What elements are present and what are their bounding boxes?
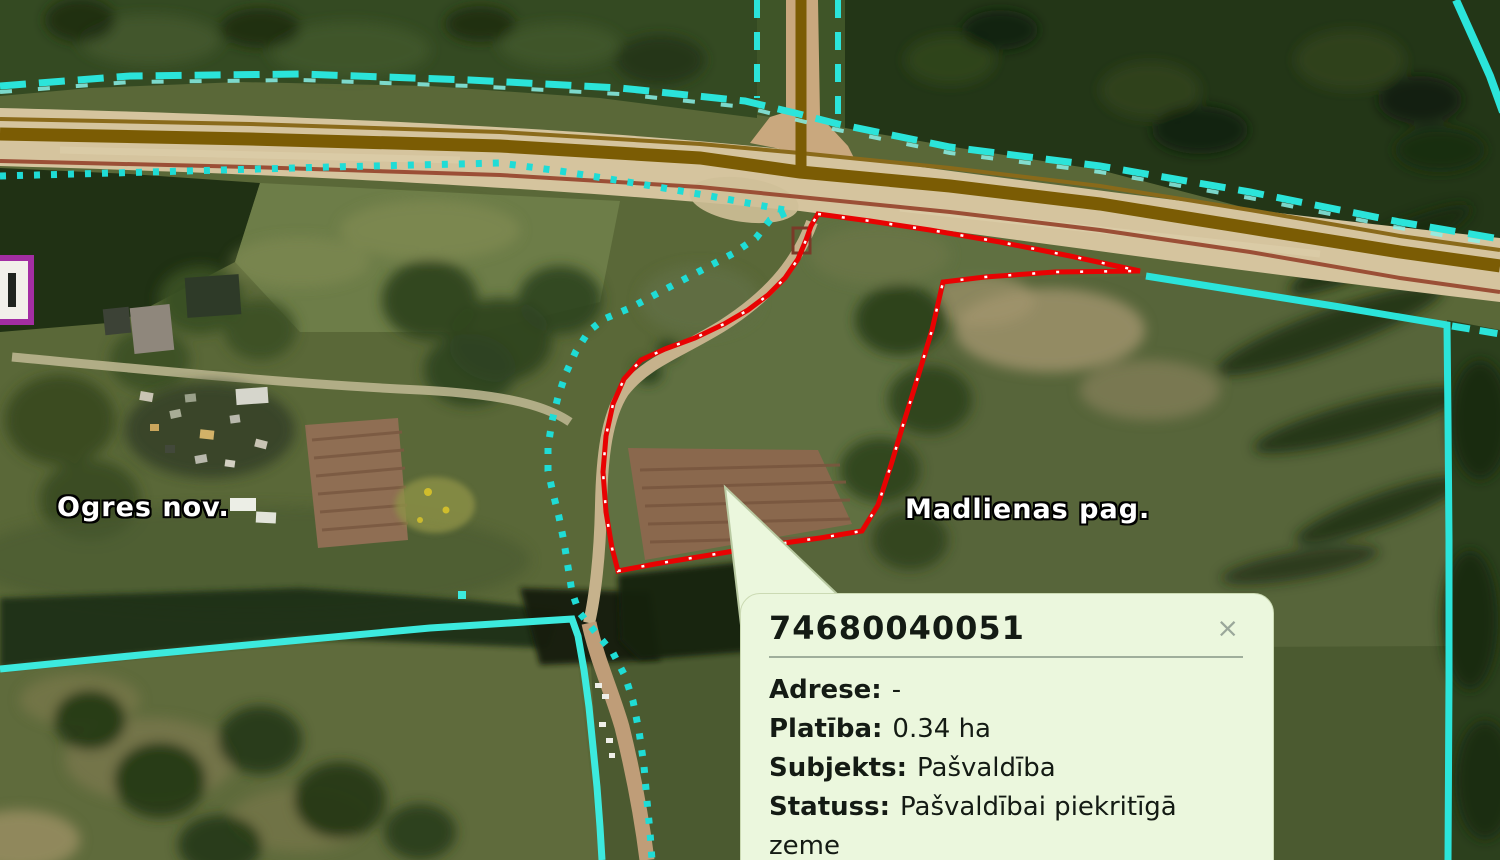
edge-marker[interactable] bbox=[0, 255, 34, 325]
field-label: Statuss: bbox=[769, 792, 890, 822]
popup-divider bbox=[769, 656, 1243, 658]
field-row-platiba: Platība:0.34 ha bbox=[769, 710, 1243, 749]
field-label: Subjekts: bbox=[769, 753, 907, 783]
field-label: Platība: bbox=[769, 714, 882, 744]
popup-title: 74680040051 bbox=[769, 606, 1025, 650]
close-icon[interactable]: × bbox=[1212, 610, 1243, 648]
field-row-adrese: Adrese:- bbox=[769, 671, 1243, 710]
cadastre-map-viewer: Ogres nov. Madlienas pag. 74680040051 × … bbox=[0, 0, 1500, 860]
field-row-statuss: Statuss:Pašvaldībai piekritīgā zeme bbox=[769, 788, 1243, 860]
field-row-subjekts: Subjekts:Pašvaldība bbox=[769, 749, 1243, 788]
field-value: 0.34 ha bbox=[892, 714, 991, 744]
field-value: Pašvaldība bbox=[917, 753, 1056, 783]
field-label: Adrese: bbox=[769, 675, 882, 705]
popup-header: 74680040051 × bbox=[769, 606, 1243, 650]
parcel-info-popup: 74680040051 × Adrese:- Platība:0.34 ha S… bbox=[740, 593, 1274, 860]
field-value: - bbox=[892, 675, 901, 705]
edge-marker-glyph bbox=[8, 273, 16, 307]
